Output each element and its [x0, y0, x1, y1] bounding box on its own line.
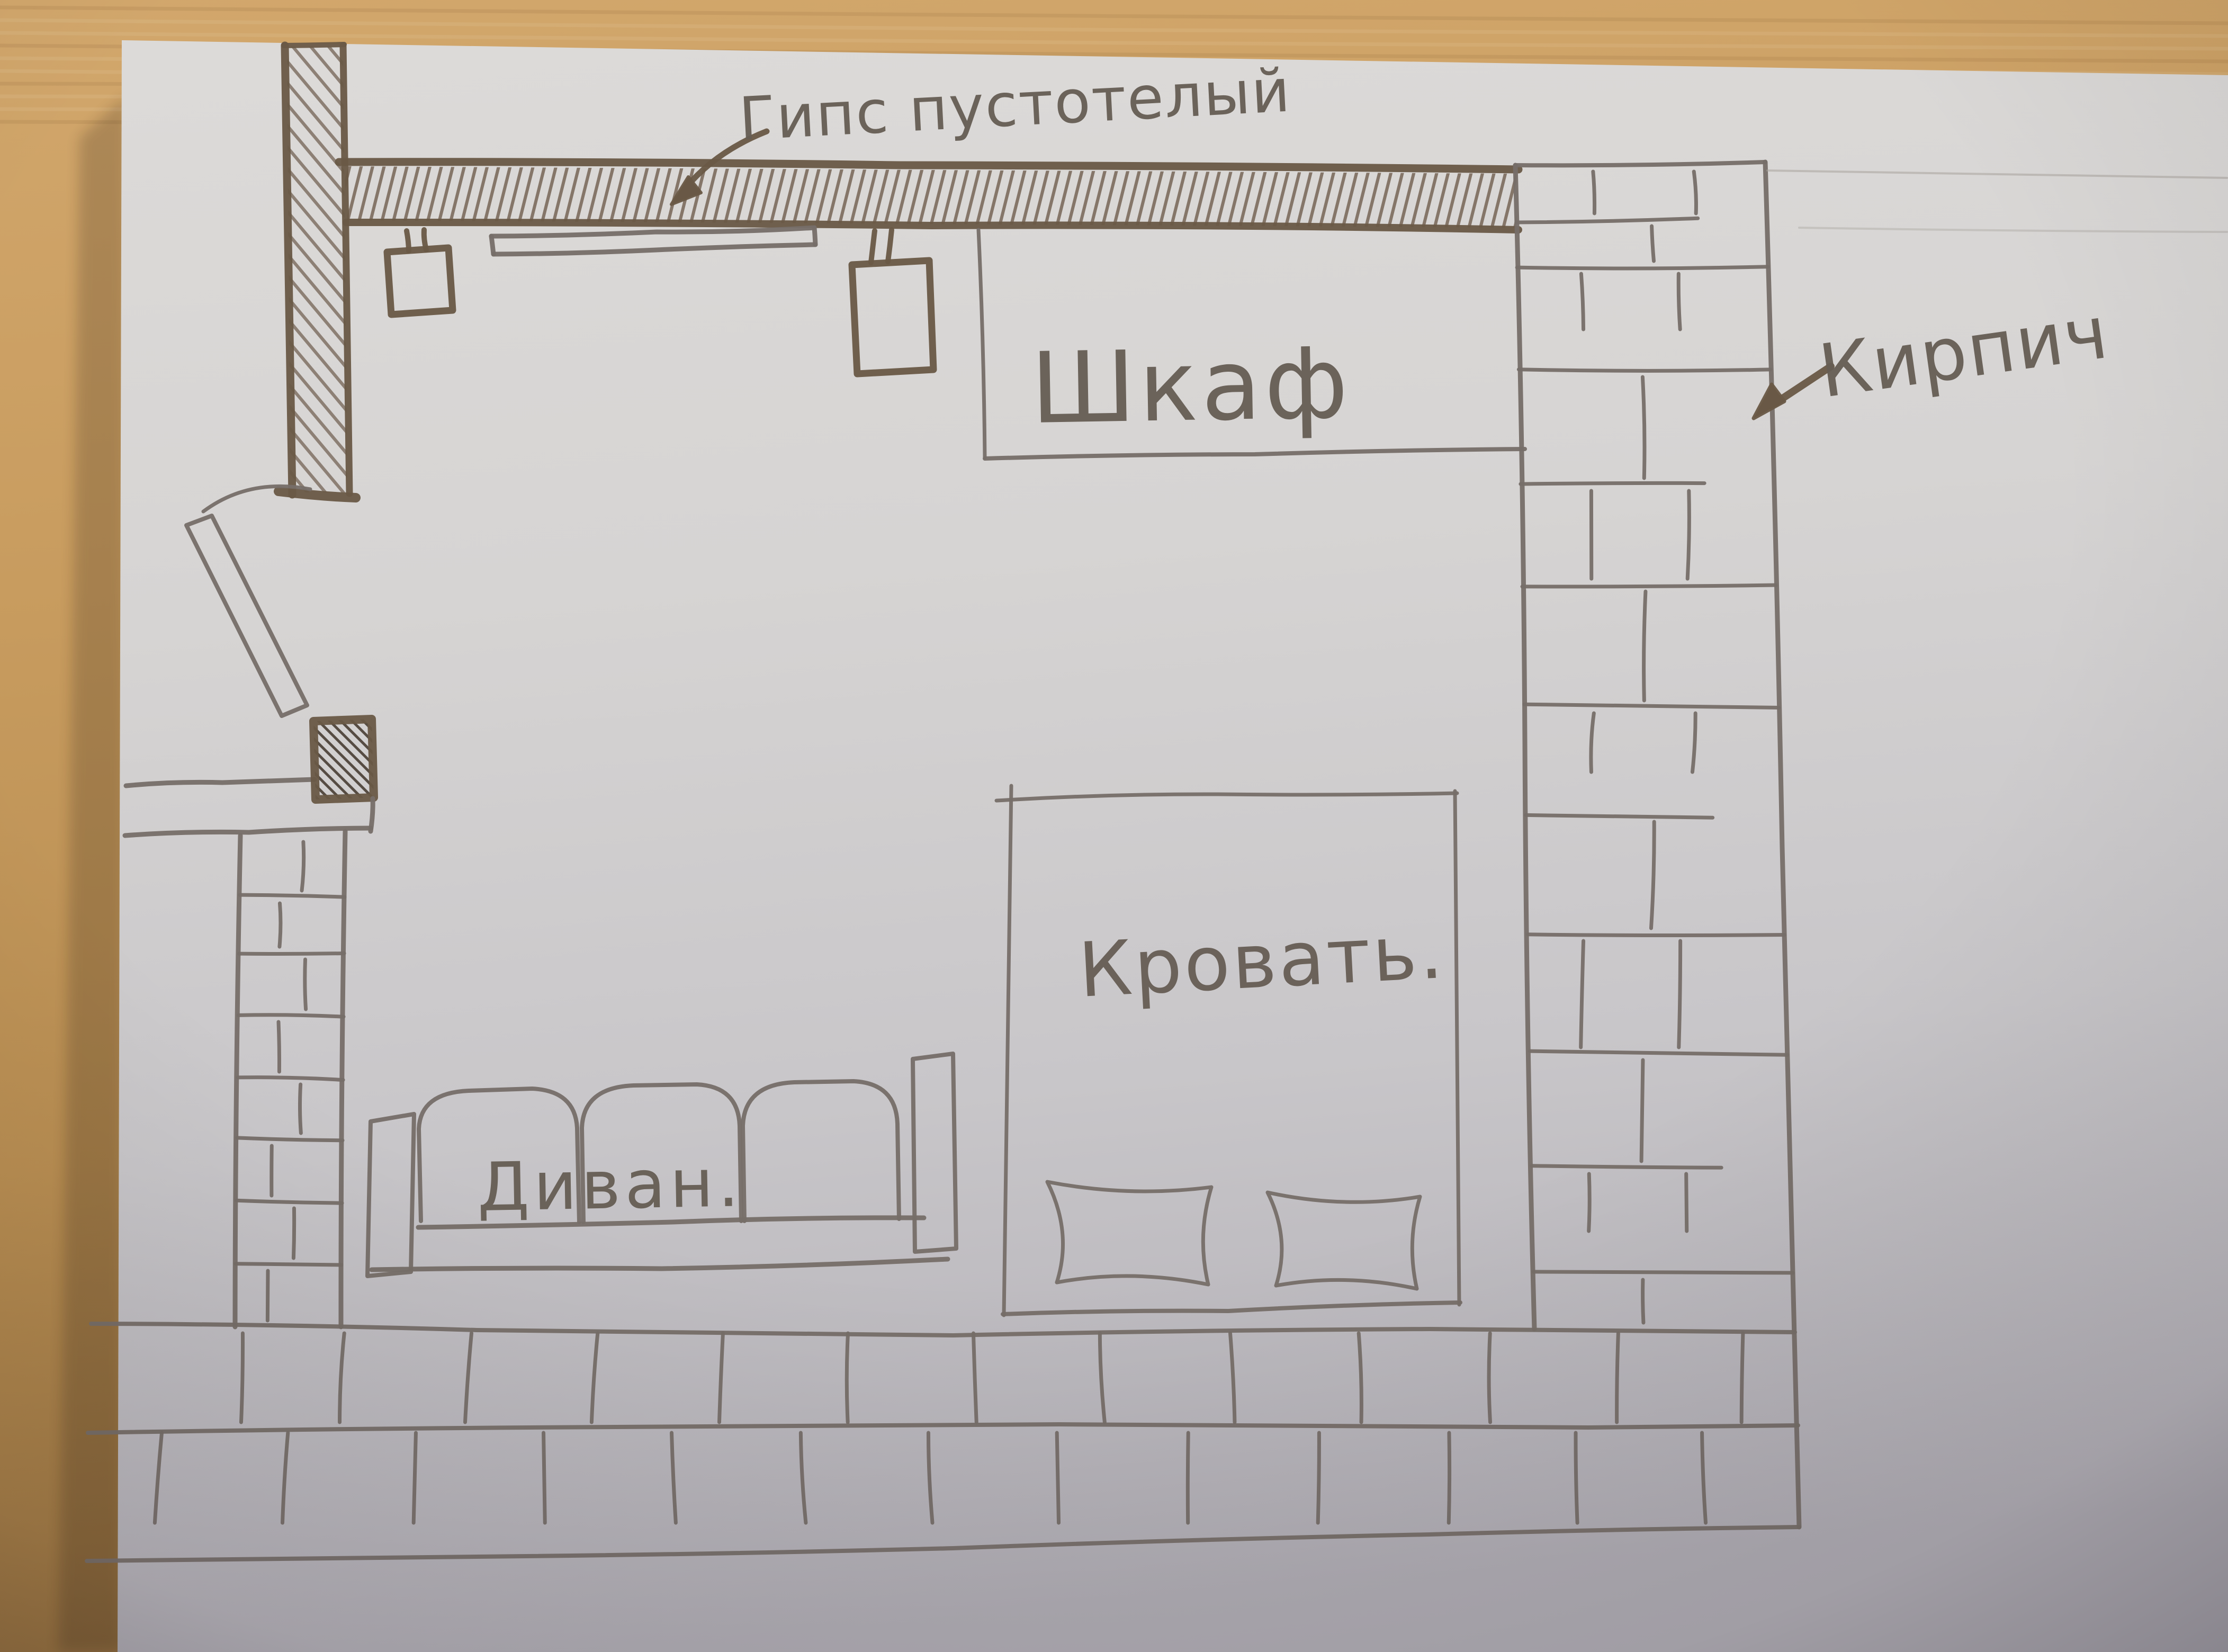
- photo-vignette: [0, 0, 2228, 1652]
- floor-plan-photo: Гипс пустотелый Шкаф Кирпич Кровать. Див…: [0, 0, 2228, 1652]
